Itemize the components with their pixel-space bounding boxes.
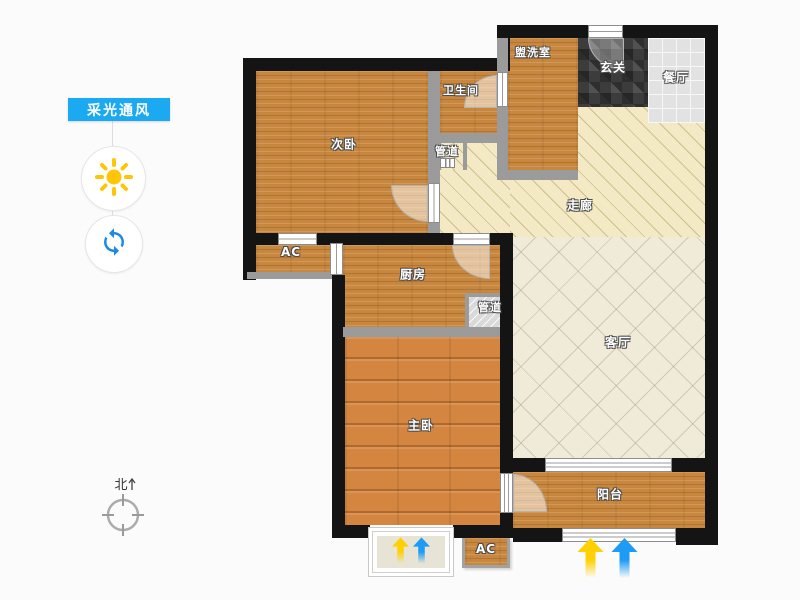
wall xyxy=(705,25,718,545)
room-label-bedroom2: 次卧 xyxy=(331,136,357,153)
room-label-balcony: 阳台 xyxy=(597,486,623,503)
room-label-living: 客厅 xyxy=(605,334,631,351)
south-indicator-arrows xyxy=(577,538,638,582)
wall xyxy=(500,237,513,473)
compass: 北 xyxy=(101,475,145,541)
daylight-arrow-icon xyxy=(577,538,604,582)
window-living-balcony xyxy=(545,458,672,472)
room-label-washroom: 盥洗室 xyxy=(515,44,551,60)
wall xyxy=(332,525,370,538)
room-living-floor xyxy=(497,237,705,458)
door-entry xyxy=(588,25,623,38)
partition-wall xyxy=(508,170,578,180)
bay-window-panel xyxy=(377,536,445,568)
room-label-bathroom: 卫生间 xyxy=(443,82,479,98)
wall xyxy=(672,458,705,472)
bay-window xyxy=(368,527,454,577)
door-bathroom xyxy=(497,72,508,107)
room-label-master: 主卧 xyxy=(408,417,434,434)
partition-wall xyxy=(428,71,440,183)
north-arrow-icon xyxy=(129,479,135,490)
daylight-arrow-icon xyxy=(392,536,409,569)
wall xyxy=(676,528,718,545)
rotate-view-button[interactable] xyxy=(85,215,143,273)
window xyxy=(330,243,343,275)
room-label-ac-lower: AC xyxy=(476,542,496,556)
room-label-duct-upper: 管道 xyxy=(435,143,459,159)
wall xyxy=(256,233,278,245)
sync-rotate-icon xyxy=(99,227,129,261)
door-kitchen xyxy=(453,233,490,245)
wall xyxy=(343,233,453,245)
partition-wall xyxy=(428,223,440,233)
daylight-ventilation-button[interactable]: 采光通风 xyxy=(68,98,170,121)
room-label-dining: 餐厅 xyxy=(663,69,689,86)
partition-wall xyxy=(497,38,508,72)
partition-wall xyxy=(497,107,508,180)
room-label-foyer: 玄关 xyxy=(600,59,626,76)
wall xyxy=(513,528,562,542)
partition-wall xyxy=(428,133,508,143)
ventilation-arrow-icon xyxy=(413,536,430,569)
wall xyxy=(243,58,256,280)
floorplan-viewer: 采光通风 北 xyxy=(0,0,800,600)
wall xyxy=(332,275,345,537)
ventilation-arrow-icon xyxy=(611,538,638,582)
room-label-ac-upper: AC xyxy=(281,245,301,259)
room-label-corridor: 走廊 xyxy=(567,197,593,214)
wall xyxy=(513,458,545,472)
room-label-kitchen: 厨房 xyxy=(400,266,426,283)
door-bedroom2 xyxy=(428,183,440,223)
room-label-duct-kitchen: 管道 xyxy=(478,299,502,315)
window xyxy=(278,233,317,245)
compass-north-label: 北 xyxy=(114,478,127,493)
daylight-toggle-button[interactable] xyxy=(81,146,146,211)
wall xyxy=(243,58,510,71)
wall xyxy=(453,525,513,538)
sun-icon xyxy=(94,157,134,201)
vent-grille-icon xyxy=(440,158,455,168)
partition-wall xyxy=(343,327,500,337)
door-balcony xyxy=(500,473,513,513)
partition-wall xyxy=(247,272,332,279)
